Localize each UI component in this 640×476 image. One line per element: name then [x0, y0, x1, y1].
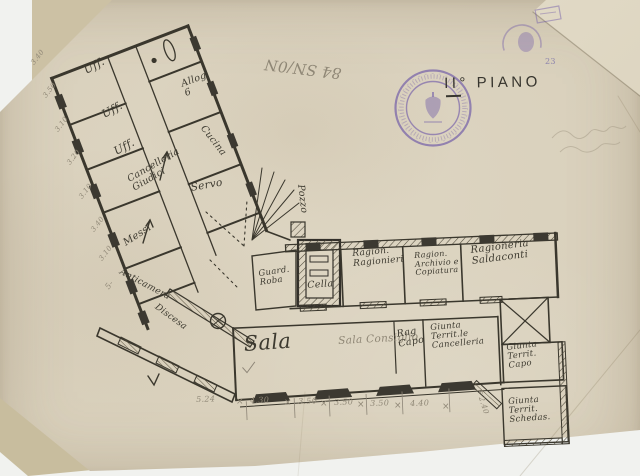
dim-bottom-5: 4.40 — [410, 399, 429, 408]
dim-mark: × — [320, 400, 328, 410]
dim-mark: × — [357, 401, 365, 411]
dim-bottom-4: 3.50 — [370, 399, 389, 408]
dim-bottom-1: 4.30 — [250, 396, 269, 405]
dim-mark: × — [442, 403, 450, 413]
room-label-giunta-schede: Giunta Territ. Schedas. — [508, 395, 551, 425]
corner-pencil-number: 23 — [545, 58, 556, 67]
room-label-sala: Sala — [243, 330, 292, 356]
dim-mark: × — [394, 402, 402, 412]
dim-mark: × — [284, 399, 292, 409]
room-label-giunta-cancelleria: Giunta Territ.le Cancelleria — [430, 319, 485, 351]
scanned-floor-plan-page: { "title": { "floor_label": "II° PIANO" … — [0, 0, 640, 476]
floor-title: II° PIANO — [444, 74, 541, 92]
room-label-cella: Cella — [307, 279, 334, 291]
dim-mark: × — [236, 398, 244, 408]
dim-bottom-2: 3.50 — [298, 397, 317, 406]
dim-bottom-3: 3.50 — [334, 398, 353, 407]
dim-bottom-0: 5.24 — [196, 395, 215, 404]
room-label-ragion-archivio: Ragion. Archivio e Copiatura — [414, 249, 460, 278]
label-pozzo: Pozzo — [295, 184, 309, 214]
room-label-giunta-capo: Giunta Territ. Capo — [506, 340, 540, 371]
